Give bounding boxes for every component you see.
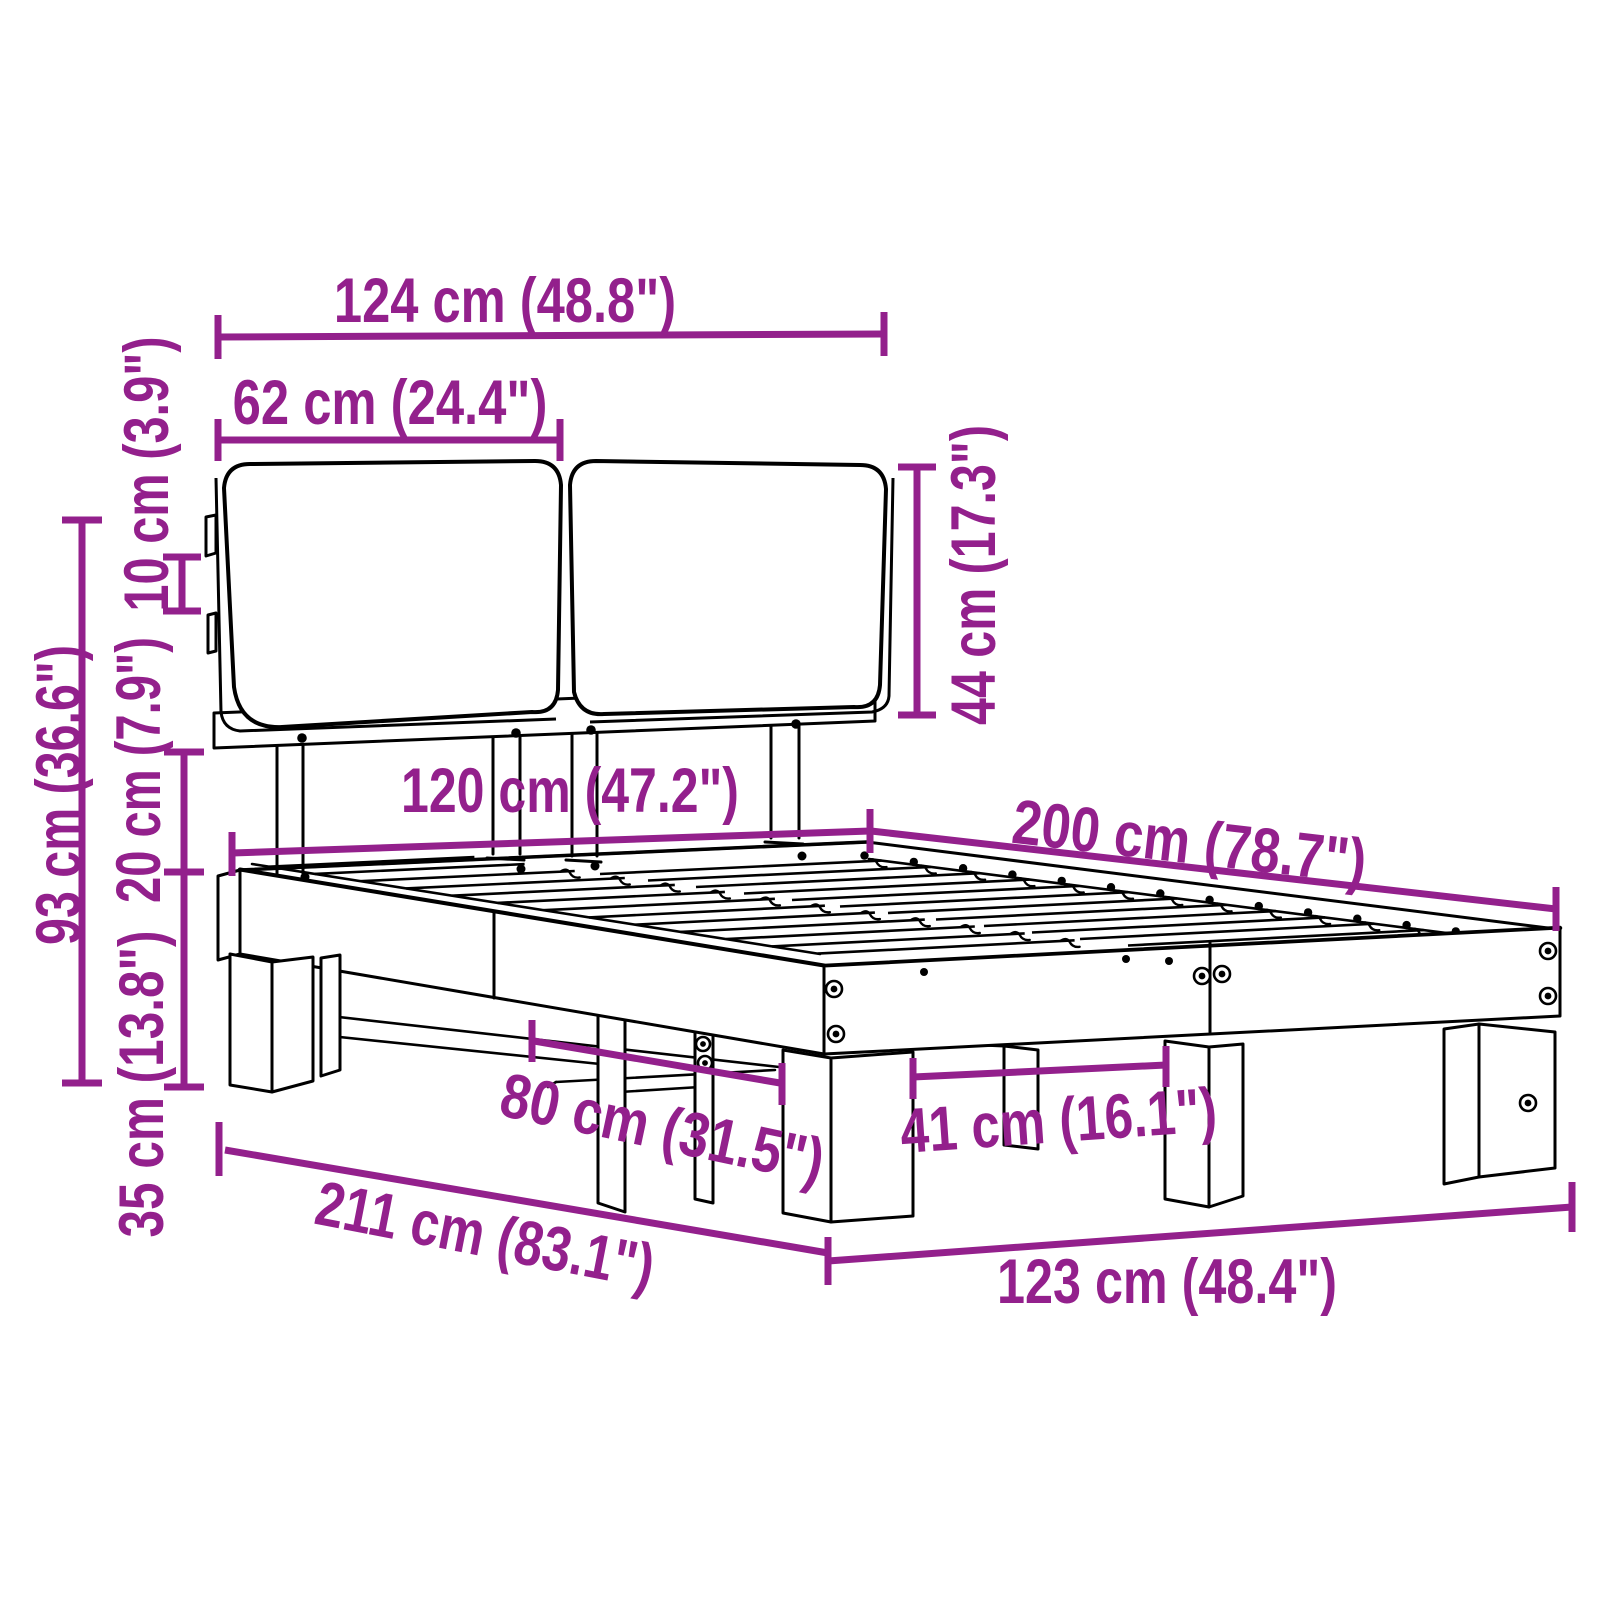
svg-text:62 cm (24.4"): 62 cm (24.4") [233, 368, 548, 438]
svg-text:35 cm (13.8"): 35 cm (13.8") [107, 931, 177, 1238]
svg-text:120 cm (47.2"): 120 cm (47.2") [401, 757, 739, 827]
svg-text:10 cm (3.9"): 10 cm (3.9") [111, 336, 181, 611]
svg-text:124 cm (48.8"): 124 cm (48.8") [334, 266, 676, 337]
svg-text:93 cm (36.6"): 93 cm (36.6") [23, 645, 94, 945]
svg-text:123 cm (48.4"): 123 cm (48.4") [997, 1247, 1337, 1318]
svg-text:20 cm (7.9"): 20 cm (7.9") [103, 637, 173, 903]
svg-text:44 cm (17.3"): 44 cm (17.3") [938, 425, 1009, 725]
